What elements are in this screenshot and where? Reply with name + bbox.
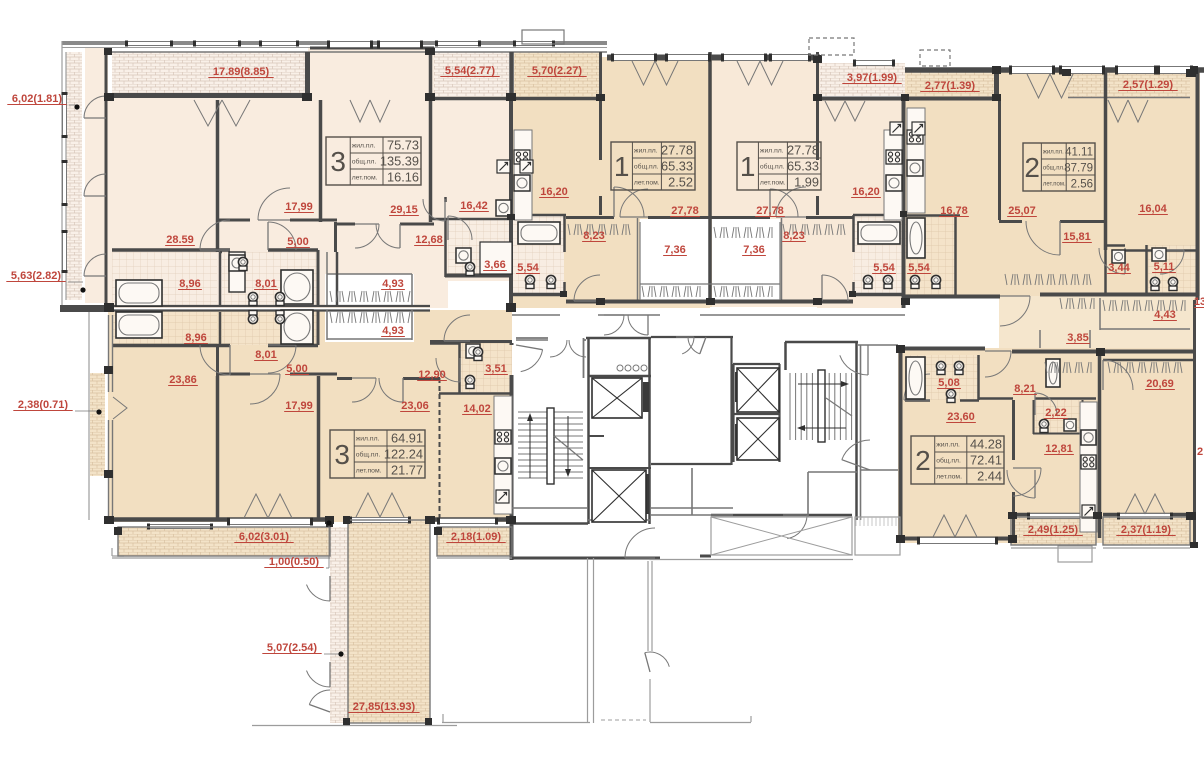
svg-text:65.33: 65.33: [787, 159, 819, 174]
svg-text:5,07(2.54): 5,07(2.54): [267, 642, 317, 654]
svg-text:8,23: 8,23: [583, 230, 604, 242]
svg-text:3,85: 3,85: [1067, 332, 1088, 344]
svg-text:65.33: 65.33: [661, 159, 693, 174]
svg-text:общ.пл.: общ.пл.: [634, 163, 659, 171]
svg-text:общ.пл.: общ.пл.: [936, 457, 961, 465]
svg-text:23,86: 23,86: [169, 374, 197, 386]
svg-text:72.41: 72.41: [970, 453, 1002, 468]
svg-text:8,96: 8,96: [185, 332, 206, 344]
svg-text:16,42: 16,42: [460, 200, 488, 212]
svg-text:7,36: 7,36: [743, 244, 764, 256]
svg-text:64.91: 64.91: [391, 431, 423, 446]
svg-text:1.99: 1.99: [794, 175, 819, 190]
svg-text:5,63(2.82): 5,63(2.82): [11, 270, 61, 282]
svg-text:8,01: 8,01: [255, 278, 276, 290]
svg-text:12,68: 12,68: [415, 234, 443, 246]
svg-text:2,37(1.19): 2,37(1.19): [1121, 524, 1171, 536]
svg-text:23,60: 23,60: [947, 411, 975, 423]
svg-text:3,97(1.99): 3,97(1.99): [847, 72, 897, 84]
svg-text:4,93: 4,93: [382, 278, 403, 290]
svg-text:лет.пом.: лет.пом.: [634, 180, 660, 187]
svg-text:5,54: 5,54: [908, 262, 930, 274]
svg-text:16,20: 16,20: [540, 186, 568, 198]
svg-text:20,69: 20,69: [1146, 378, 1174, 390]
svg-text:5,54(2.77): 5,54(2.77): [445, 65, 495, 77]
svg-text:жил.пл.: жил.пл.: [356, 436, 380, 443]
svg-text:4,93: 4,93: [382, 325, 403, 337]
svg-text:28.59: 28.59: [166, 234, 194, 246]
svg-text:17,99: 17,99: [285, 201, 313, 213]
svg-text:44.28: 44.28: [970, 437, 1002, 452]
svg-text:25,07: 25,07: [1008, 205, 1036, 217]
svg-text:12,90: 12,90: [418, 369, 446, 381]
svg-text:6,02(3.01): 6,02(3.01): [239, 531, 289, 543]
svg-text:27.78: 27.78: [661, 143, 693, 158]
svg-text:2.56: 2.56: [1071, 179, 1093, 191]
svg-text:2.52: 2.52: [668, 175, 693, 190]
svg-text:3,66: 3,66: [484, 259, 505, 271]
svg-text:общ.пл.: общ.пл.: [1043, 166, 1065, 172]
svg-text:2.44: 2.44: [977, 469, 1002, 484]
svg-text:16.16: 16.16: [387, 170, 419, 185]
svg-text:17.89(8.85): 17.89(8.85): [213, 66, 270, 78]
svg-text:1: 1: [614, 151, 630, 182]
svg-text:27,78: 27,78: [756, 205, 784, 217]
svg-text:жил.пл.: жил.пл.: [936, 442, 960, 449]
svg-text:5,08: 5,08: [938, 377, 959, 389]
svg-text:8,01: 8,01: [255, 349, 276, 361]
svg-text:5,00: 5,00: [287, 236, 308, 248]
svg-text:лет.пом.: лет.пом.: [356, 468, 382, 475]
svg-text:5,11: 5,11: [1154, 261, 1175, 273]
svg-text:2,18(1.09): 2,18(1.09): [451, 531, 501, 543]
svg-text:2,49(1.25): 2,49(1.25): [1028, 524, 1078, 536]
svg-text:27,85(13.93): 27,85(13.93): [353, 701, 416, 713]
svg-text:лет.пом.: лет.пом.: [760, 180, 786, 187]
svg-text:23,06: 23,06: [401, 400, 429, 412]
svg-text:2,77(1.39): 2,77(1.39): [925, 80, 975, 92]
svg-text:3: 3: [330, 146, 346, 177]
svg-text:8,96: 8,96: [179, 278, 200, 290]
svg-text:3: 3: [334, 439, 350, 470]
svg-text:лет.пом.: лет.пом.: [1043, 182, 1066, 188]
svg-text:2: 2: [915, 445, 931, 476]
svg-text:1: 1: [740, 151, 756, 182]
svg-text:5,54: 5,54: [873, 262, 895, 274]
svg-text:1,00(0.50): 1,00(0.50): [269, 556, 319, 568]
svg-text:41.11: 41.11: [1065, 147, 1093, 159]
svg-text:27,78: 27,78: [671, 205, 699, 217]
svg-text:16,04: 16,04: [1139, 203, 1167, 215]
svg-text:122.24: 122.24: [384, 447, 423, 462]
svg-text:3,51: 3,51: [485, 363, 506, 375]
svg-text:12,81: 12,81: [1045, 443, 1073, 455]
svg-text:13: 13: [1194, 296, 1204, 308]
svg-text:16,20: 16,20: [852, 186, 880, 198]
svg-text:жил.пл.: жил.пл.: [760, 148, 784, 155]
svg-text:6,02(1.81): 6,02(1.81): [12, 93, 62, 105]
svg-text:8,23: 8,23: [783, 230, 804, 242]
svg-text:5,54: 5,54: [517, 262, 539, 274]
svg-text:7,36: 7,36: [664, 244, 685, 256]
svg-text:лет.пом.: лет.пом.: [936, 474, 962, 481]
svg-text:5,00: 5,00: [286, 363, 307, 375]
svg-text:75.73: 75.73: [387, 138, 419, 153]
svg-text:8,21: 8,21: [1014, 383, 1035, 395]
svg-text:лет.пом.: лет.пом.: [352, 175, 378, 182]
svg-text:4,43: 4,43: [1154, 309, 1175, 321]
svg-text:жил.пл.: жил.пл.: [352, 143, 376, 150]
svg-text:16,78: 16,78: [940, 205, 968, 217]
svg-text:17,99: 17,99: [285, 400, 313, 412]
svg-text:29,15: 29,15: [390, 204, 418, 216]
svg-text:2,38(0.71): 2,38(0.71): [18, 399, 68, 411]
svg-text:87.79: 87.79: [1064, 163, 1093, 175]
svg-text:2,57(1.29): 2,57(1.29): [1123, 79, 1173, 91]
svg-text:жил.пл.: жил.пл.: [1043, 150, 1064, 156]
svg-text:2: 2: [1024, 152, 1040, 183]
svg-text:27.78: 27.78: [787, 143, 819, 158]
svg-text:общ.пл.: общ.пл.: [760, 163, 785, 171]
svg-text:общ.пл.: общ.пл.: [352, 158, 377, 166]
svg-text:жил.пл.: жил.пл.: [634, 148, 658, 155]
svg-text:3,44: 3,44: [1108, 262, 1130, 274]
svg-text:135.39: 135.39: [380, 154, 419, 169]
svg-text:5,70(2.27): 5,70(2.27): [532, 65, 582, 77]
svg-text:15,81: 15,81: [1063, 231, 1091, 243]
svg-text:21.77: 21.77: [391, 463, 423, 478]
svg-text:2,22: 2,22: [1045, 407, 1066, 419]
svg-text:2: 2: [1197, 446, 1203, 458]
svg-text:14,02: 14,02: [463, 403, 491, 415]
svg-text:общ.пл.: общ.пл.: [356, 451, 381, 459]
